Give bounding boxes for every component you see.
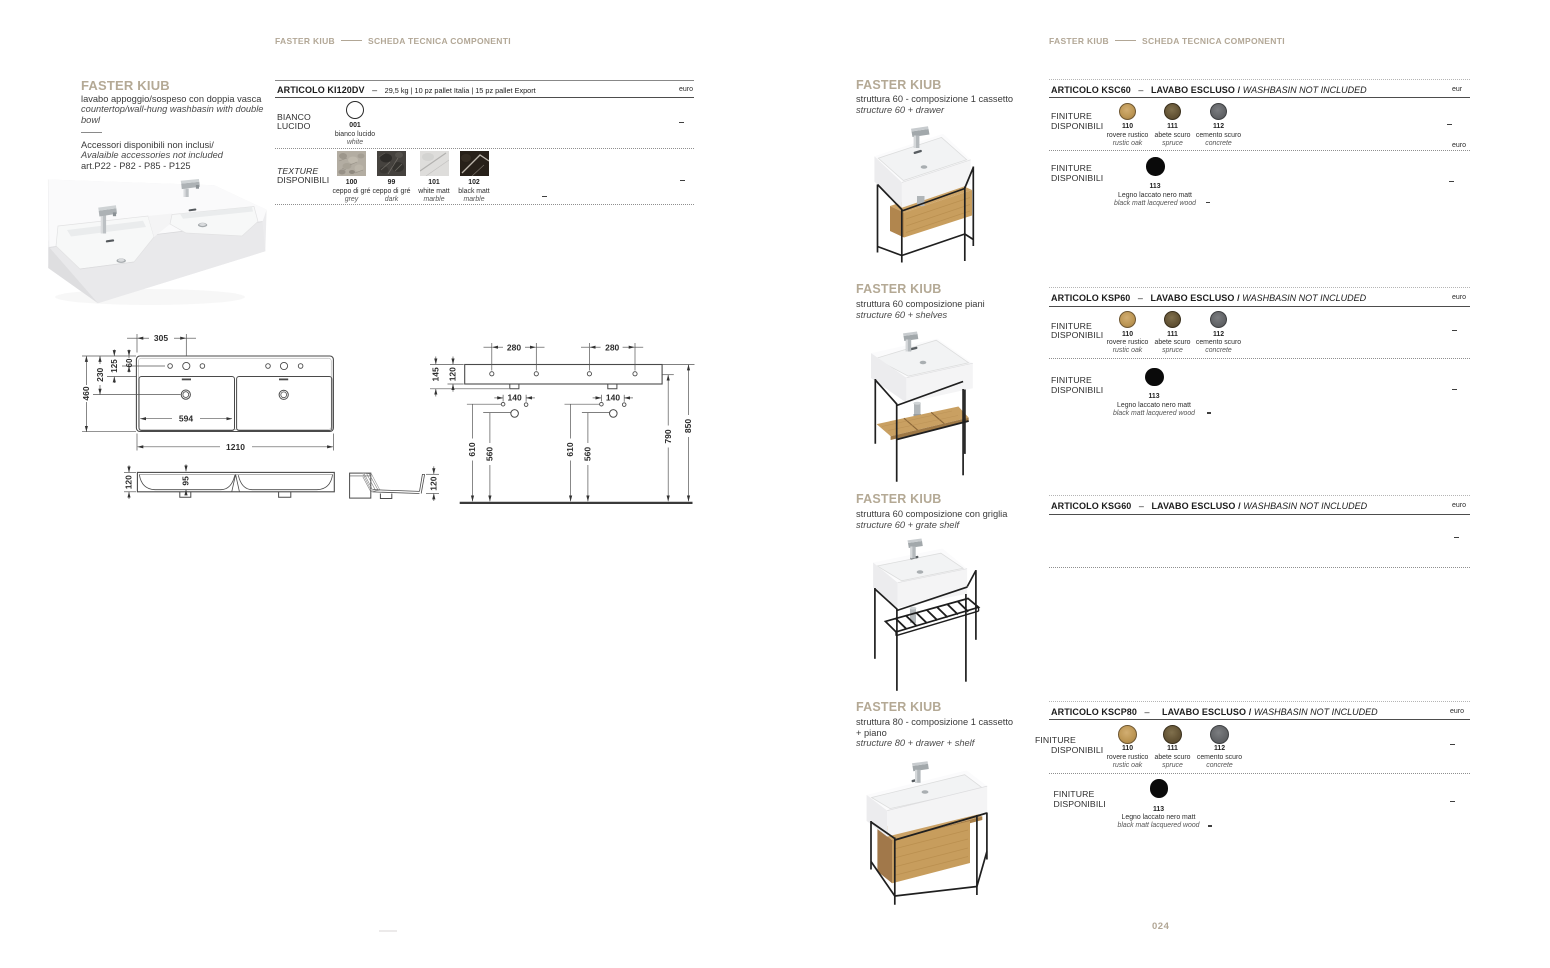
svg-text:1210: 1210 (226, 442, 245, 452)
svg-text:560: 560 (583, 447, 593, 461)
svg-text:120: 120 (124, 475, 134, 489)
svg-text:610: 610 (467, 442, 477, 456)
svg-text:95: 95 (181, 476, 191, 486)
svg-text:120: 120 (428, 476, 438, 490)
svg-text:790: 790 (663, 429, 673, 443)
svg-text:145: 145 (430, 367, 440, 381)
svg-text:230: 230 (95, 367, 105, 381)
svg-text:140: 140 (606, 393, 620, 403)
svg-text:594: 594 (179, 414, 193, 424)
svg-text:850: 850 (683, 419, 693, 433)
svg-text:280: 280 (507, 342, 521, 352)
svg-text:125: 125 (110, 359, 119, 373)
svg-text:610: 610 (565, 442, 575, 456)
svg-text:280: 280 (605, 342, 619, 352)
svg-text:305: 305 (154, 333, 168, 343)
svg-text:140: 140 (508, 393, 522, 403)
svg-text:460: 460 (81, 386, 91, 400)
svg-text:120: 120 (448, 367, 458, 381)
svg-text:60: 60 (125, 358, 134, 367)
svg-text:560: 560 (485, 447, 495, 461)
